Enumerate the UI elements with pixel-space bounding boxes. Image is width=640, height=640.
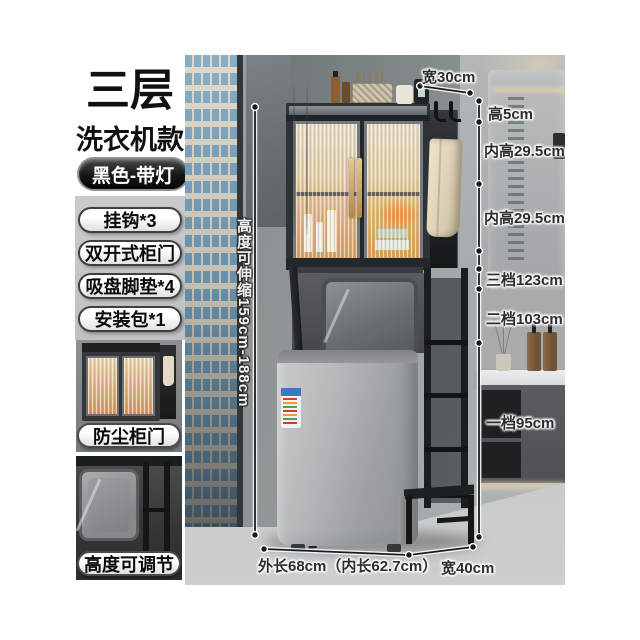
thumbnail-caption-dustproof: 防尘柜门 <box>77 423 181 448</box>
dim-bottom-depth: 宽40cm <box>441 557 494 578</box>
cabinet-door-right <box>364 121 423 261</box>
feature-pill-install-kit: 安装包*1 <box>78 306 182 332</box>
thumbnail-towel <box>163 356 174 386</box>
window-building-view <box>185 55 237 575</box>
thumbnail-cabinet-drawing <box>82 343 160 421</box>
product-photo-scene: 宽30cm 高5cm 内高29.5cm 内高29.5cm 三档123cm 二档1… <box>185 55 565 585</box>
towel-niche <box>482 442 521 478</box>
dim-gear-2: 二档103cm <box>486 308 563 329</box>
hanging-towel <box>426 138 462 237</box>
product-title-line2: 洗衣机款 <box>68 118 192 157</box>
gold-door-handle <box>357 158 362 218</box>
feature-list: 挂钩*3 双开式柜门 吸盘脚垫*4 安装包*1 <box>75 196 185 340</box>
product-listing-image: 三层 洗衣机款 黑色-带灯 挂钩*3 双开式柜门 吸盘脚垫*4 安装包*1 防尘… <box>0 0 640 640</box>
amber-bottle <box>527 332 541 371</box>
side-ladder-glass-panel <box>431 278 461 503</box>
thumbnail-dustproof-door: 防尘柜门 <box>76 340 182 452</box>
vanity-counter <box>478 370 565 385</box>
side-ladder-rail <box>424 268 431 508</box>
thumbnail-caption-height: 高度可调节 <box>77 551 181 576</box>
dim-top-width: 宽30cm <box>422 66 475 87</box>
dim-height-range: 高度可伸缩159cm-188cm <box>233 218 254 428</box>
decor-jar <box>396 85 413 104</box>
thumbnail-height-adjust: 高度可调节 <box>76 456 182 580</box>
energy-label <box>281 388 301 428</box>
washer-control-panel <box>277 350 418 363</box>
reed-diffuser <box>496 354 511 371</box>
dim-inner-height-upper: 内高29.5cm <box>484 140 565 161</box>
hanging-hook-icon <box>434 101 438 117</box>
decor-bottle <box>331 76 340 103</box>
rack-crossbar <box>286 258 430 267</box>
thumbnail-lid-drawing <box>79 469 139 541</box>
side-ladder-rail <box>461 268 468 508</box>
product-title-line1: 三层 <box>75 68 185 114</box>
wall-dark-tile <box>243 55 291 227</box>
decor-bottle <box>342 82 350 103</box>
washer-open-lid <box>322 278 418 354</box>
dim-outer-length: 外长68cm（内长62.7cm） <box>258 555 437 576</box>
amber-bottle <box>543 332 557 371</box>
hanging-hook-icon <box>449 101 453 117</box>
variant-badge: 黑色-带灯 <box>77 157 189 191</box>
led-strip <box>493 88 565 92</box>
feature-pill-suction-pads: 吸盘脚垫*4 <box>78 273 182 299</box>
dim-inner-height-lower: 内高29.5cm <box>484 207 565 228</box>
gold-door-handle <box>349 158 354 218</box>
decor-basket <box>352 83 393 103</box>
vanity-cabinet <box>478 385 565 483</box>
dim-top-height: 高5cm <box>488 103 533 124</box>
feature-pill-hooks: 挂钩*3 <box>78 207 182 233</box>
feature-pill-double-doors: 双开式柜门 <box>78 240 182 266</box>
wall-tile-edge <box>243 55 246 227</box>
dim-gear-1: 一档95cm <box>486 412 554 433</box>
dim-gear-3: 三档123cm <box>486 269 563 290</box>
washing-machine <box>277 350 418 546</box>
